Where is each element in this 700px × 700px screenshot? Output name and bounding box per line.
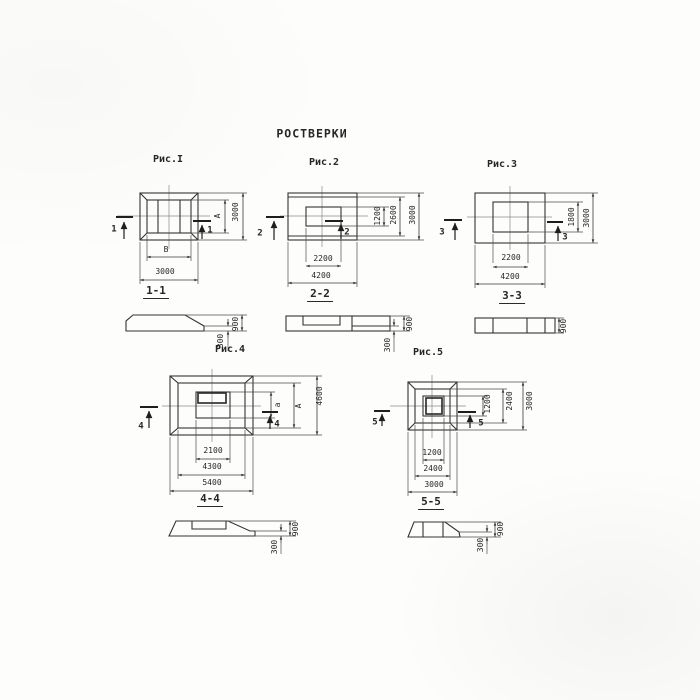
fig3-plan (444, 186, 598, 288)
fig1-width-outer-dim: 3000 (155, 268, 174, 276)
fig5-width-outer-dim: 3000 (424, 481, 443, 489)
fig2-cut-mark-right: 2 (344, 229, 349, 238)
drawing-sheet: РОСТВЕРКИ Рис.I Рис.2 Рис.3 Рис.4 Рис.5 … (0, 0, 700, 700)
section-3-3-height-dim: 900 (560, 319, 568, 333)
fig2-height-middle-dim: 2600 (390, 205, 398, 224)
fig4-cut-mark-right: 4 (274, 421, 279, 430)
fig4-plan (140, 369, 322, 495)
section-5-5-edge-dim: 300 (477, 538, 485, 552)
fig5-label: Рис.5 (413, 348, 443, 358)
fig4-cut-mark-left: 4 (138, 423, 143, 432)
sheet-title: РОСТВЕРКИ (276, 128, 347, 140)
fig3-height-outer-dim: 3000 (583, 208, 591, 227)
fig1-cut-mark-right: 1 (207, 227, 212, 236)
section-3-3-title: 3-3 (499, 290, 525, 304)
section-2-2-edge-dim: 300 (384, 338, 392, 352)
fig4-width-outer-dim: 5400 (202, 479, 221, 487)
fig5-height-middle-dim: 2400 (506, 391, 514, 410)
fig1-width-inner-dim: В (164, 246, 169, 254)
fig5-width-middle-dim: 2400 (423, 465, 442, 473)
section-5-5-title: 5-5 (418, 496, 444, 510)
fig3-label: Рис.3 (487, 160, 517, 170)
section-1-1-title: 1-1 (143, 285, 169, 299)
fig2-width-inner-dim: 2200 (313, 255, 332, 263)
drawing-linework (0, 0, 700, 700)
fig3-width-inner-dim: 2200 (501, 254, 520, 262)
section-2-2-title: 2-2 (307, 288, 333, 302)
fig4-height-inner-dim: а (274, 403, 282, 408)
fig4-width-inner-dim: 2100 (203, 447, 222, 455)
fig5-width-inner-dim: 1200 (422, 449, 441, 457)
fig5-cut-mark-right: 5 (478, 420, 483, 429)
fig2-label: Рис.2 (309, 158, 339, 168)
fig5-height-outer-dim: 3000 (526, 391, 534, 410)
fig2-width-outer-dim: 4200 (311, 272, 330, 280)
fig5-section (408, 522, 501, 554)
fig3-cut-mark-left: 3 (439, 229, 444, 238)
fig3-cut-mark-right: 3 (562, 234, 567, 243)
fig4-height-middle-dim: А (295, 404, 303, 409)
fig3-width-outer-dim: 4200 (500, 273, 519, 281)
section-2-2-height-dim: 900 (406, 317, 414, 331)
fig2-cut-mark-left: 2 (257, 230, 262, 239)
fig1-height-outer-dim: 3000 (232, 202, 240, 221)
fig4-height-outer-dim: 4600 (316, 386, 324, 405)
fig3-section (475, 318, 564, 333)
fig1-label: Рис.I (153, 155, 183, 165)
section-1-1-height-dim: 900 (232, 317, 240, 331)
fig4-width-middle-dim: 4300 (202, 463, 221, 471)
fig2-height-outer-dim: 3000 (409, 205, 417, 224)
section-1-1-edge-dim: 300 (217, 334, 225, 348)
fig5-height-inner-dim: 1200 (484, 394, 492, 413)
fig1-cut-mark-left: 1 (111, 226, 116, 235)
fig1-height-inner-dim: А (214, 214, 222, 219)
fig3-height-inner-dim: 1800 (568, 207, 576, 226)
section-4-4-edge-dim: 300 (271, 540, 279, 554)
fig2-height-inner-dim: 1200 (374, 206, 382, 225)
fig5-cut-mark-left: 5 (372, 419, 377, 428)
section-4-4-height-dim: 900 (292, 522, 300, 536)
fig1-plan (116, 185, 247, 284)
section-4-4-title: 4-4 (197, 493, 223, 507)
section-5-5-height-dim: 900 (497, 522, 505, 536)
